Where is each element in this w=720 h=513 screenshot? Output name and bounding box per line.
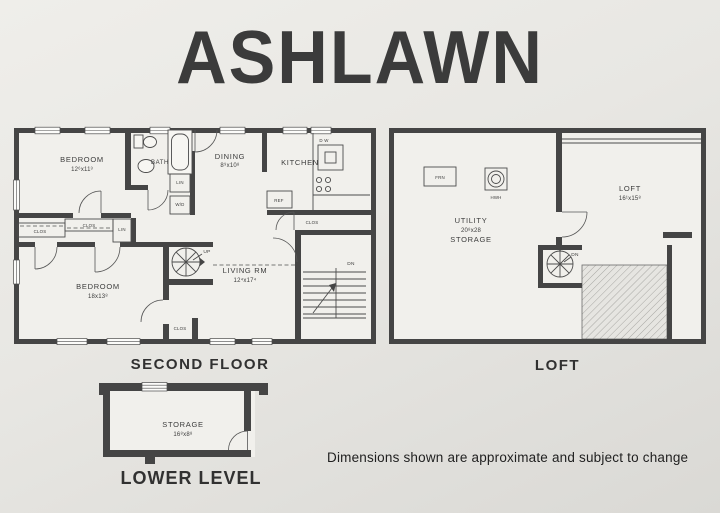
lower-level-label: LOWER LEVEL (96, 468, 286, 489)
window (14, 180, 20, 210)
down-label: DN (571, 252, 579, 258)
window (107, 339, 140, 345)
room-label: BATH (151, 160, 169, 166)
window (14, 260, 20, 284)
furnace-label: FRN (435, 175, 445, 180)
window (35, 127, 60, 134)
room-label: LIVING RM (223, 266, 268, 275)
window (252, 339, 272, 345)
window (311, 127, 331, 134)
lower-level-plan: STORAGE 16⁸x8⁸ (95, 375, 280, 475)
water-heater-label: HWH (490, 195, 501, 200)
room-dims: 16⁸x8⁸ (173, 431, 193, 438)
window (150, 127, 170, 134)
window (142, 383, 167, 392)
refrigerator-label: REF (274, 198, 283, 203)
disclaimer-text: Dimensions shown are approximate and sub… (327, 450, 688, 465)
bathtub-icon (168, 130, 192, 174)
room-label: KITCHEN (281, 158, 319, 167)
open-to-below-hatch (582, 265, 667, 339)
room-dims: 12⁶x11³ (71, 166, 93, 173)
room-dims: 18x13⁸ (88, 293, 108, 300)
up-label: UP (203, 249, 210, 255)
room-label: LOFT (619, 184, 641, 193)
room-dims: 20⁸x28 (461, 227, 482, 234)
second-floor-plan: BEDROOM 12⁶x11³ BATH DINING 8⁹x10⁸ KITCH… (10, 122, 380, 352)
window (210, 339, 235, 345)
closet-label: LIN (118, 227, 125, 232)
room-dims: 16¹x15⁸ (619, 195, 642, 202)
second-floor-label: SECOND FLOOR (115, 356, 285, 373)
loft-plan: FRN HWH UTILITY 20⁸x28 STORAGE LOFT 16¹x… (385, 122, 715, 352)
room-dims: 12⁴x17⁴ (234, 277, 257, 284)
window (283, 127, 307, 134)
plan-title: ASHLAWN (0, 14, 720, 100)
room-dims: 8⁹x10⁸ (220, 162, 240, 169)
floor-plan-page: { "title": "ASHLAWN", "footnote": "Dimen… (0, 0, 720, 513)
washer-dryer-label: W/D (175, 202, 184, 207)
window (57, 339, 87, 345)
room-label: BEDROOM (60, 155, 104, 164)
loft-label: LOFT (495, 357, 620, 374)
room-label: DINING (215, 152, 245, 161)
closet-label: CLOS (34, 229, 47, 234)
room-label: BEDROOM (76, 282, 120, 291)
closet-label: CLOS (83, 223, 96, 228)
dishwasher-label: D W (319, 138, 329, 143)
closet-label: CLOS (174, 326, 187, 331)
room-label: UTILITY (455, 216, 488, 225)
window (85, 127, 110, 134)
closet-label: LIN (176, 180, 183, 185)
window (220, 127, 245, 134)
room-label: STORAGE (162, 420, 203, 429)
room-label: STORAGE (450, 235, 491, 244)
down-label: DN (347, 261, 355, 267)
closet-label: CLOS (306, 220, 319, 225)
